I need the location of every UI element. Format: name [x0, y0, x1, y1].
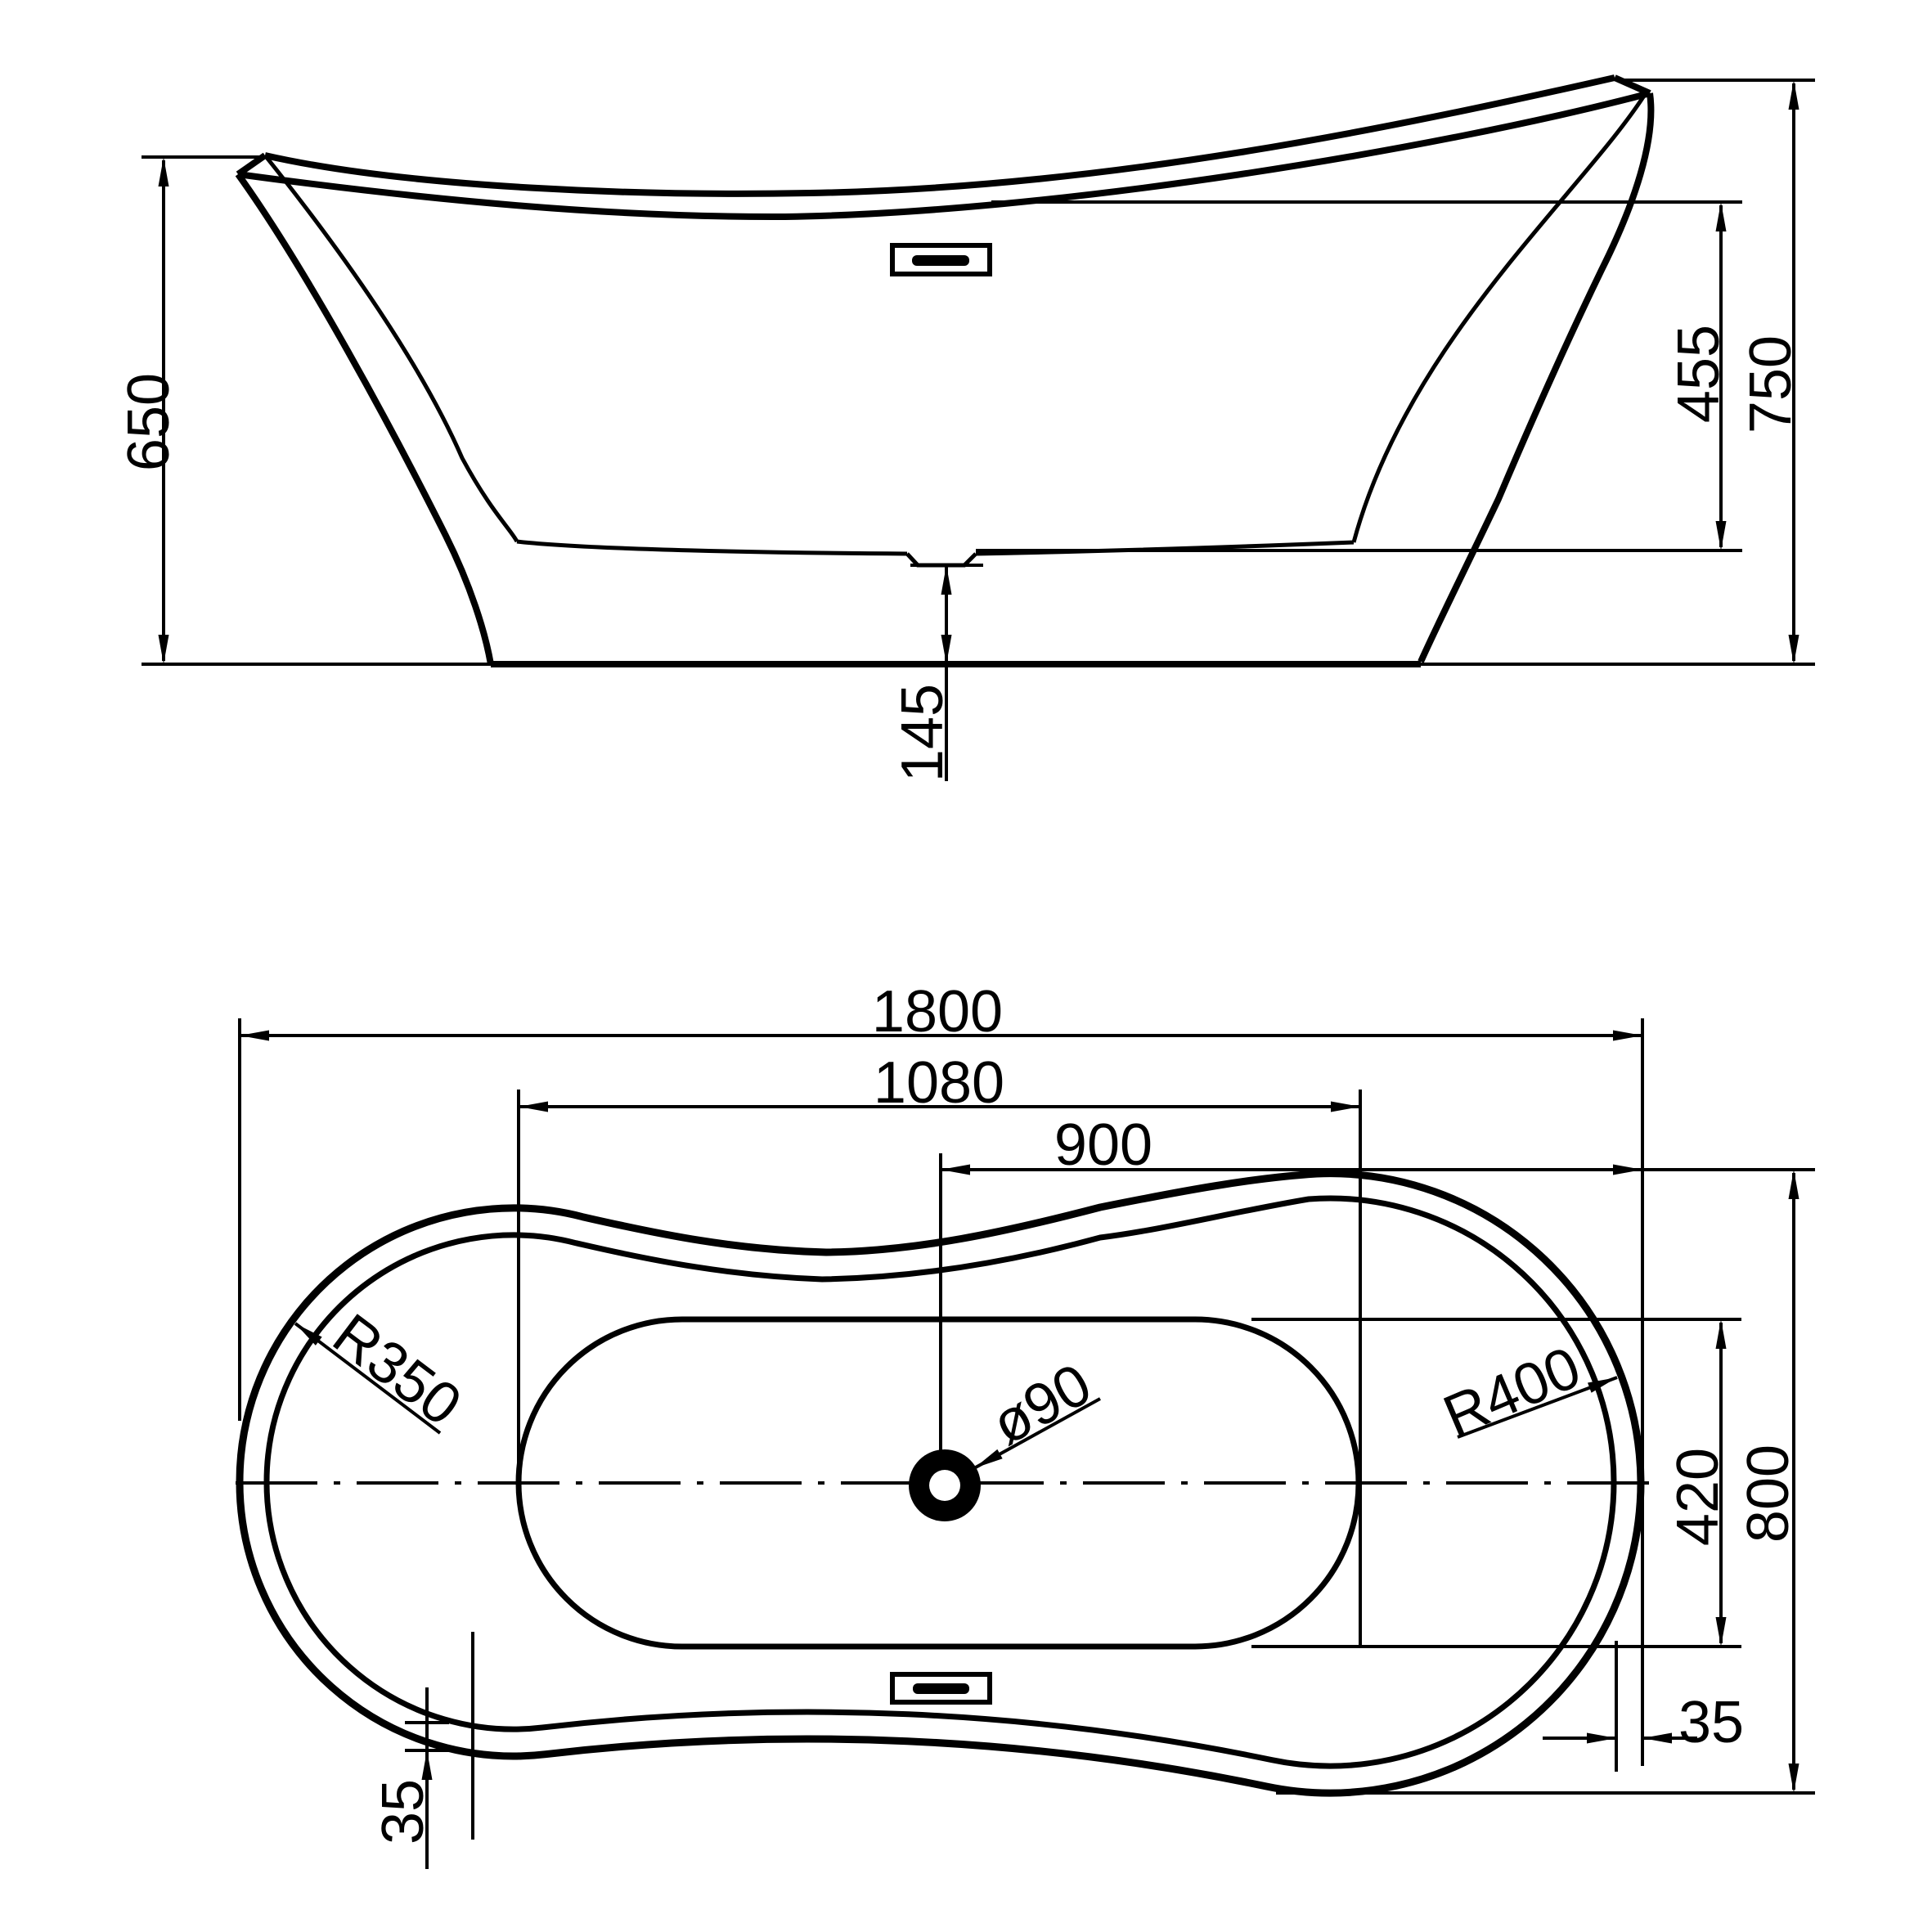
svg-text:145: 145 [890, 684, 955, 782]
svg-text:1080: 1080 [874, 1050, 1004, 1116]
svg-text:455: 455 [1666, 325, 1732, 423]
svg-text:750: 750 [1738, 335, 1804, 434]
svg-text:35: 35 [371, 1779, 436, 1844]
svg-text:900: 900 [1054, 1112, 1152, 1178]
svg-text:650: 650 [116, 373, 182, 471]
svg-text:35: 35 [1678, 1690, 1744, 1755]
svg-text:1800: 1800 [872, 979, 1003, 1045]
svg-text:420: 420 [1665, 1448, 1731, 1546]
svg-text:800: 800 [1736, 1445, 1801, 1543]
